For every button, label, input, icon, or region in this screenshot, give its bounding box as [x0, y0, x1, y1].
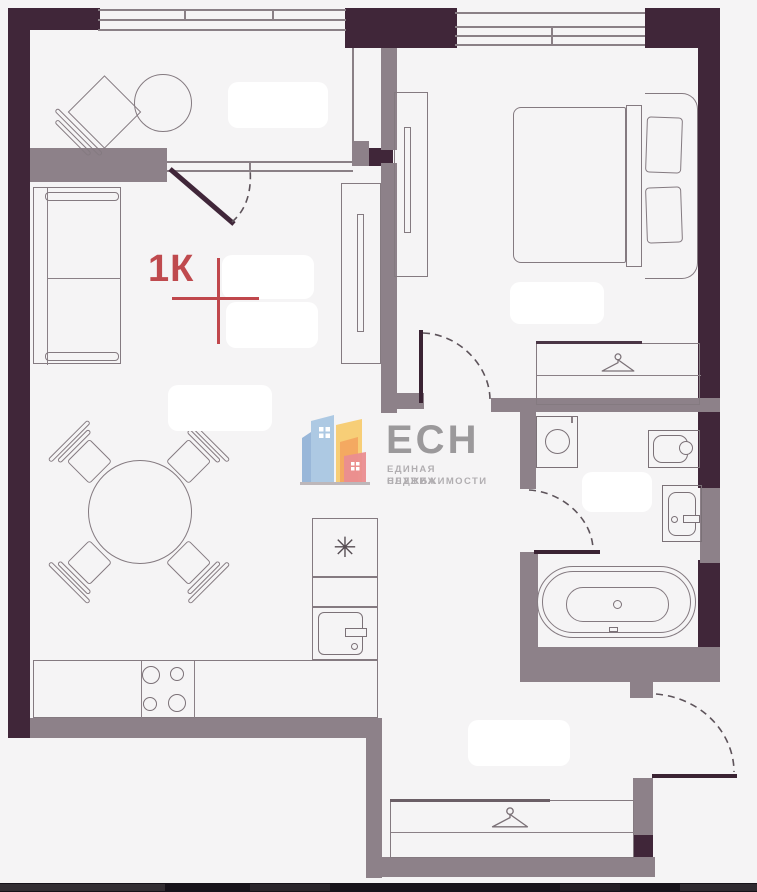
bottom-crop-strip [0, 883, 757, 892]
door-arc-bathroom [529, 490, 593, 549]
door-arc-balcony [232, 168, 250, 222]
door-leaf-balcony [170, 169, 234, 224]
strip-segment [250, 884, 330, 891]
door-arc-entrance [656, 694, 734, 772]
strip-segment [0, 884, 165, 891]
strip-segment [560, 884, 620, 891]
floor-plan: ✳ 1К [0, 0, 757, 892]
door-arc-bedroom [423, 333, 490, 400]
strip-segment [680, 884, 757, 891]
door-swings-overlay [0, 0, 757, 892]
